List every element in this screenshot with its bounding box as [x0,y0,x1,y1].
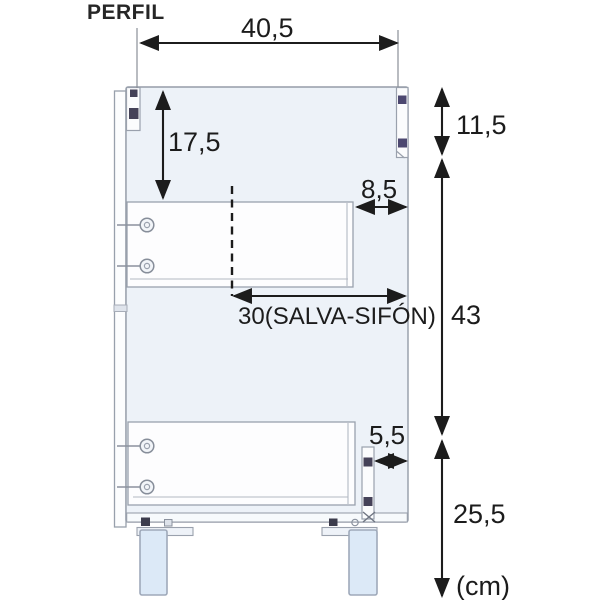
dim-label-drawer-back-offset: 8,5 [361,176,397,202]
profile-drawing-page: PERFIL 40,5 17,5 11,5 8,5 43 30(SALVA-SI… [0,0,600,600]
right-leg [349,530,377,595]
dim-label-slide-back-offset: 5,5 [369,422,405,448]
hinge-top-right-icon [397,88,409,159]
top-drawer-box [127,202,353,287]
hinge-top-left-icon [127,88,141,131]
bottom-drawer-box [128,422,355,505]
cabinet-profile-diagram [0,0,600,600]
drawing-title: PERFIL [87,2,165,23]
dim-label-top-depth: 40,5 [241,15,294,42]
dim-label-top-section: 17,5 [168,129,221,156]
side-joint-mark [114,305,127,312]
unit-label: (cm) [456,573,510,600]
dim-label-siphon-clearance: 30(SALVA-SIFÓN) [238,305,436,329]
drawer-slide-rail-icon [362,447,375,522]
dim-label-mid-section: 43 [451,302,481,329]
dim-label-bottom-section: 25,5 [453,501,506,528]
left-leg [140,530,167,595]
dim-label-hinge-zone: 11,5 [456,112,507,139]
